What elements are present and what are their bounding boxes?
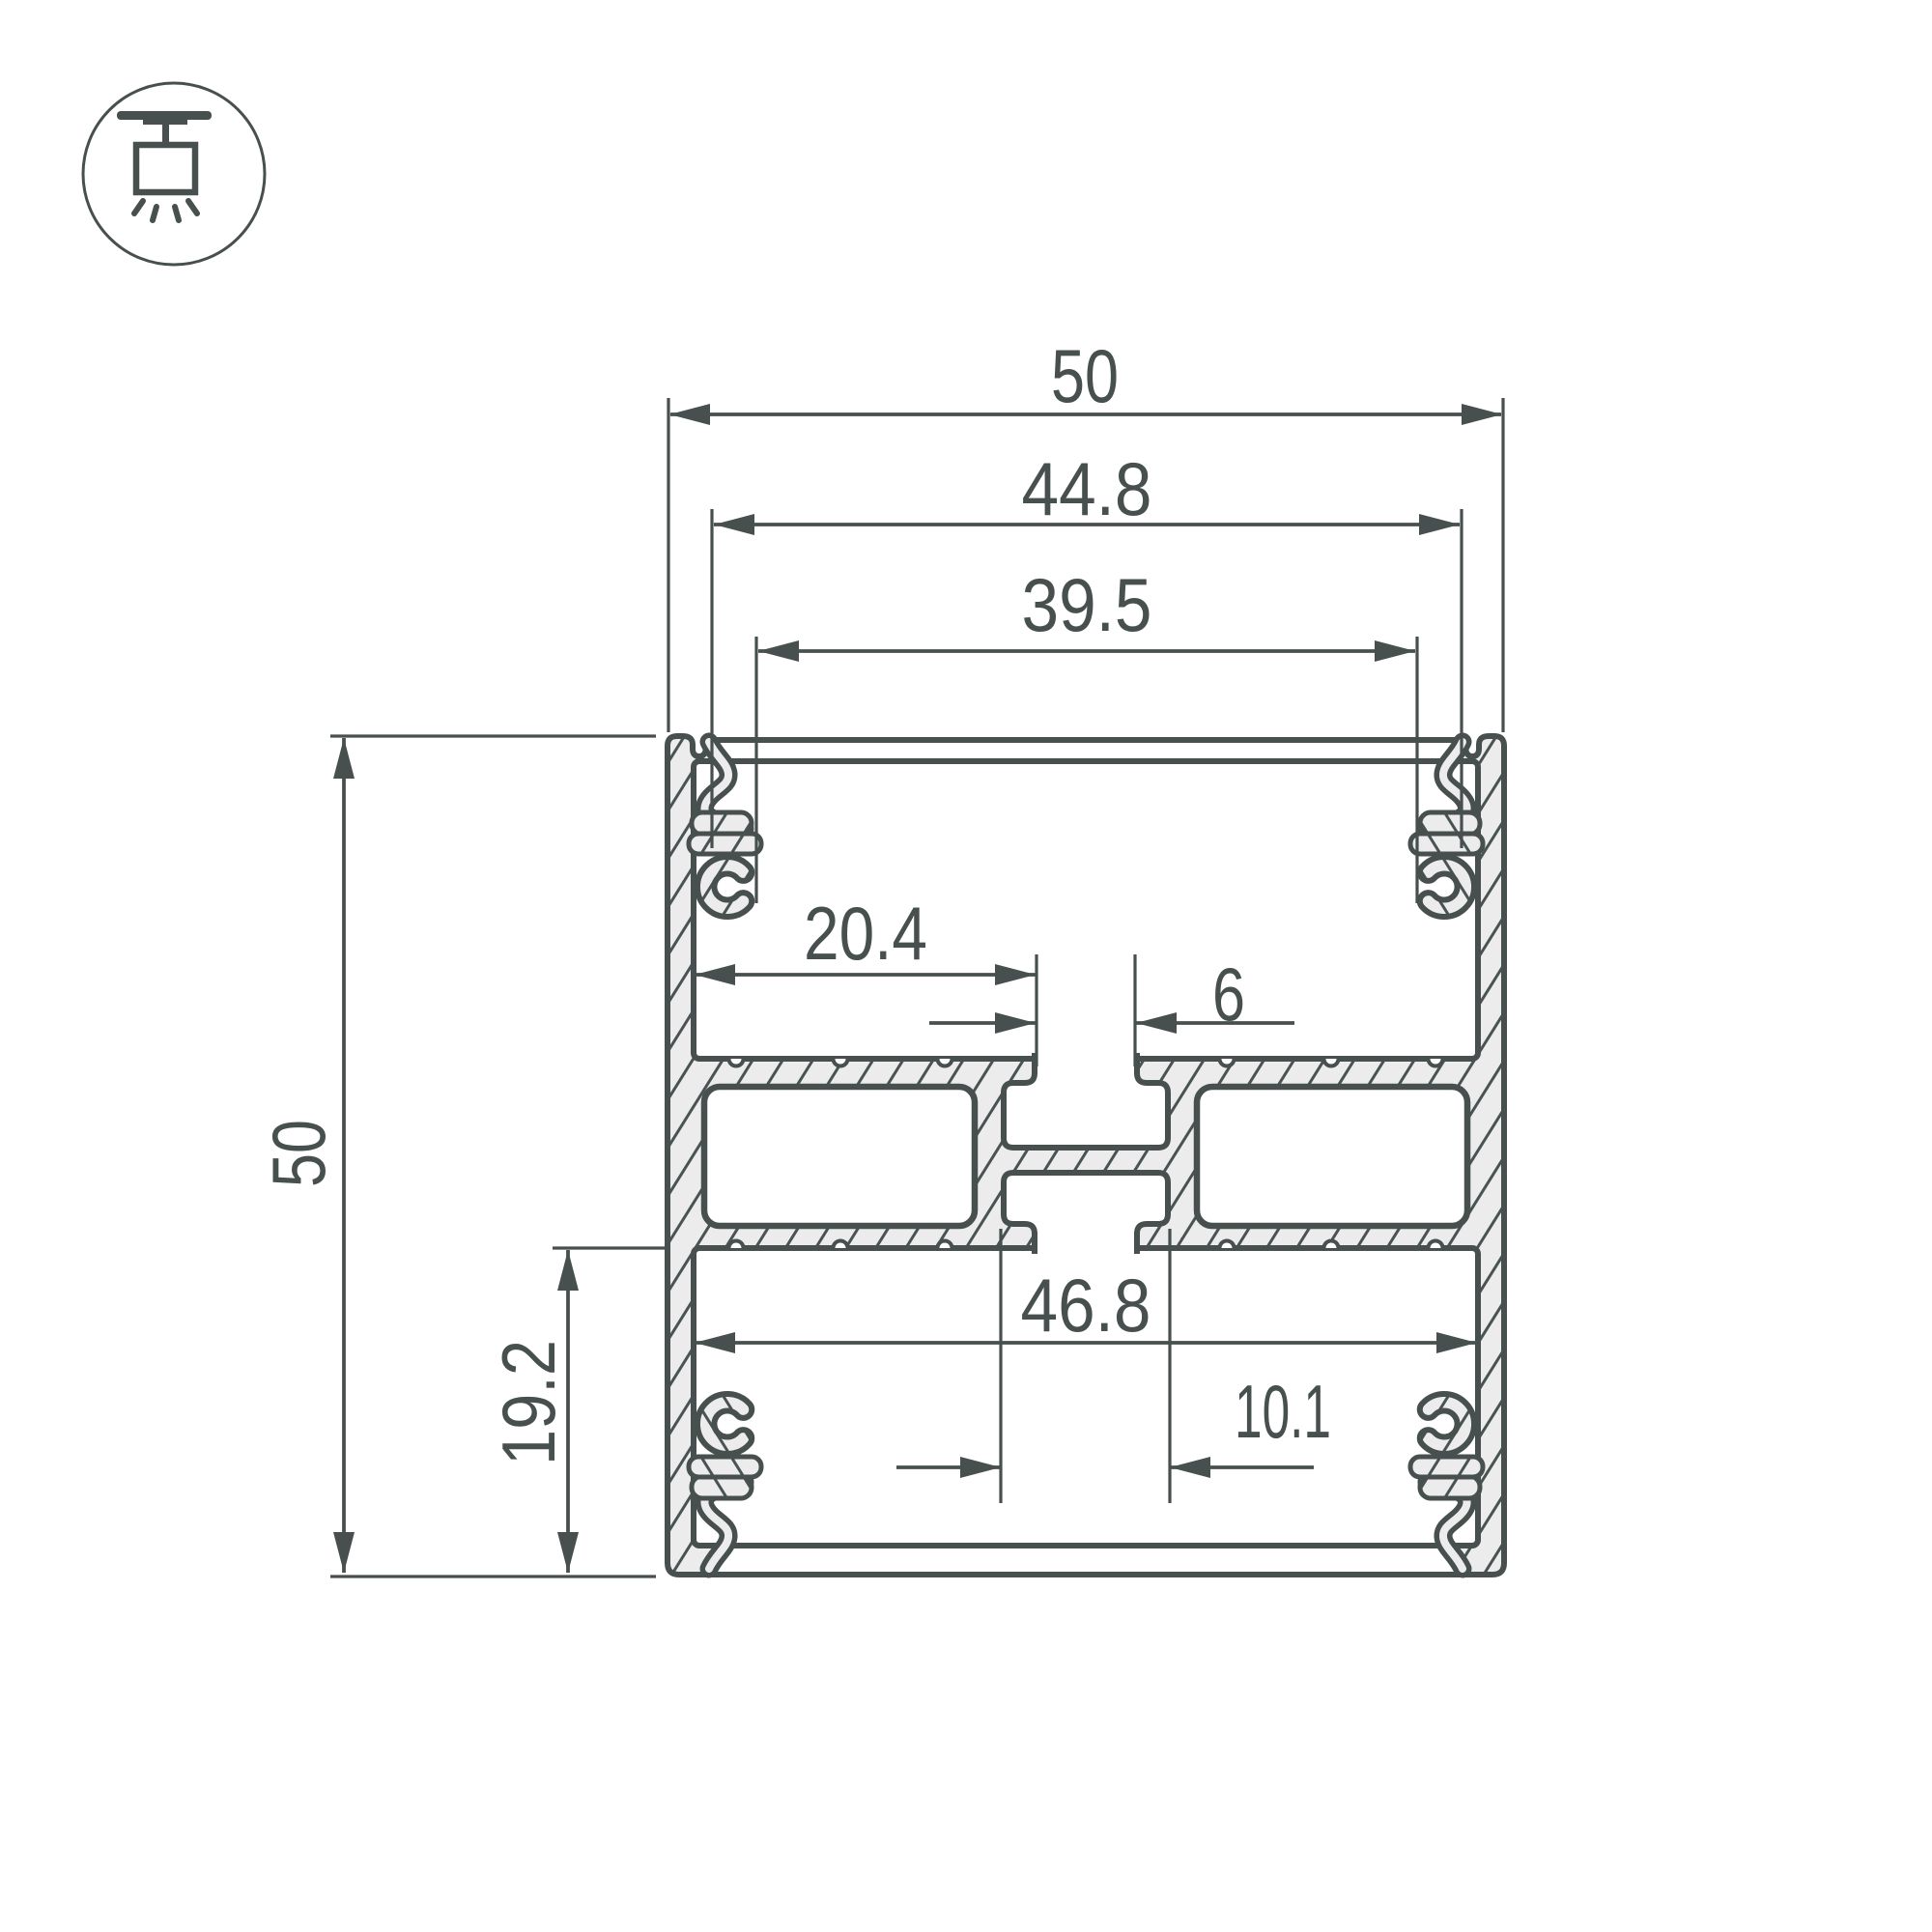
svg-text:39.5: 39.5 — [1022, 562, 1152, 647]
svg-text:6: 6 — [1212, 952, 1245, 1037]
svg-text:46.8: 46.8 — [1021, 1263, 1151, 1348]
svg-text:50: 50 — [256, 1120, 341, 1187]
svg-text:20.4: 20.4 — [804, 891, 927, 976]
svg-text:19.2: 19.2 — [486, 1340, 571, 1465]
svg-text:50: 50 — [1051, 333, 1119, 418]
svg-text:44.8: 44.8 — [1022, 446, 1152, 531]
svg-text:10.1: 10.1 — [1235, 1369, 1331, 1454]
